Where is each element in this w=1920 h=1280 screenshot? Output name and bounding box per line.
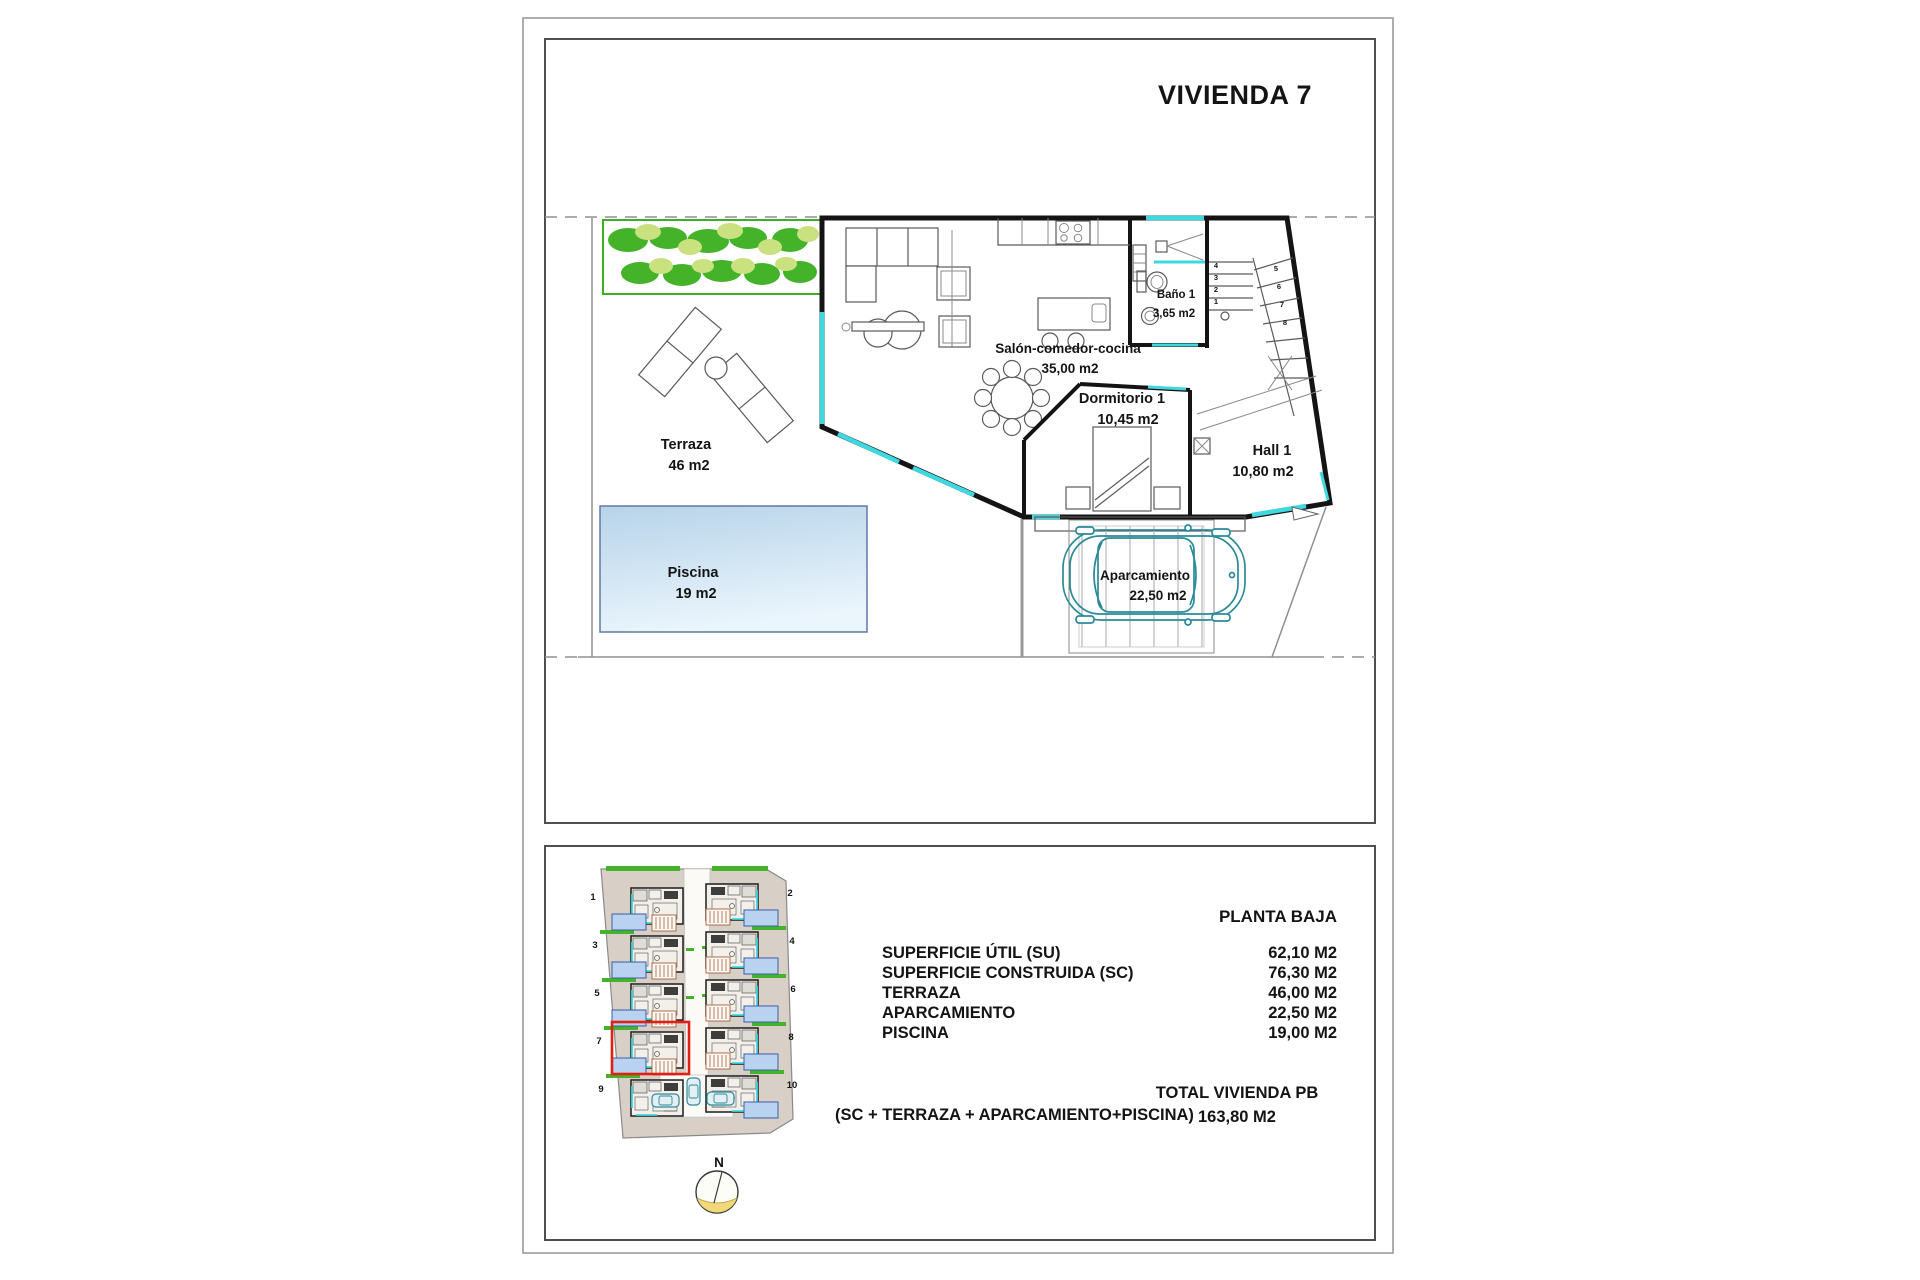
summary-row-label: APARCAMIENTO: [882, 1004, 1015, 1022]
terrace: Terraza 46 m2: [639, 307, 794, 474]
summary-row-value: 76,30 M2: [1268, 964, 1337, 982]
page-title: VIVIENDA 7: [1158, 80, 1312, 110]
pool: Piscina 19 m2: [600, 506, 867, 632]
plan-sheet: VIVIENDA 7: [0, 0, 1920, 1280]
plot-number: 4: [789, 936, 795, 947]
site-plan: 1 2 3 4 5 6 7 8 9 10 N: [590, 866, 797, 1213]
room-label-piscina: Piscina: [668, 565, 720, 581]
room-area-dormitorio: 10,45 m2: [1097, 412, 1158, 428]
room-area-salon: 35,00 m2: [1041, 361, 1098, 376]
nightstand: [1154, 487, 1180, 509]
dining-chair: [975, 390, 992, 407]
summary-row-label: SUPERFICIE ÚTIL (SU): [882, 943, 1060, 962]
room-label-hall: Hall 1: [1253, 443, 1292, 459]
room-label-dormitorio: Dormitorio 1: [1079, 391, 1165, 407]
summary-row-label: TERRAZA: [882, 984, 961, 1002]
sofa: [846, 228, 938, 266]
stair-step-number: 7: [1280, 300, 1284, 309]
plot-number: 8: [788, 1032, 793, 1043]
dining-chair: [1025, 369, 1042, 386]
floor-plan: VIVIENDA 7: [545, 80, 1375, 657]
room-label-terraza: Terraza: [661, 437, 712, 453]
side-table: [705, 357, 727, 379]
summary-row-value: 22,50 M2: [1268, 1004, 1337, 1022]
summary-row-label: PISCINA: [882, 1024, 949, 1042]
tv-bench: [852, 322, 924, 331]
plot-number: 1: [590, 892, 596, 903]
plot-number: 7: [596, 1036, 601, 1047]
sun-lounger: [639, 307, 722, 396]
pool-water: [600, 506, 867, 632]
room-area-aparcamiento: 22,50 m2: [1129, 588, 1186, 603]
plot-number: 5: [594, 988, 600, 999]
parking-bay: [1069, 520, 1214, 653]
room-area-hall: 10,80 m2: [1232, 464, 1293, 480]
plot-number: 3: [592, 940, 597, 951]
dining-chair: [1004, 419, 1021, 436]
summary-row-value: 19,00 M2: [1268, 1024, 1337, 1042]
plot-line-right-slant: [1272, 507, 1326, 657]
plot-number: 6: [790, 984, 795, 995]
dining-chair: [983, 411, 1000, 428]
planter-bed: [603, 220, 822, 294]
room-area-piscina: 19 m2: [675, 586, 716, 602]
summary-total-label: TOTAL VIVIENDA PB: [1156, 1084, 1319, 1102]
plot-number: 9: [598, 1084, 603, 1095]
sofa-chaise: [846, 266, 876, 302]
side-table: [937, 267, 970, 300]
plot-number: 2: [787, 888, 792, 899]
stair-step-number: 2: [1214, 285, 1218, 294]
north-compass: N: [696, 1155, 738, 1213]
room-area-terraza: 46 m2: [668, 458, 709, 474]
site-car-icon: [687, 1078, 700, 1105]
site-car-icon: [652, 1094, 679, 1107]
summary-formula: (SC + TERRAZA + APARCAMIENTO+PISCINA): [835, 1106, 1194, 1124]
summary-row-label: SUPERFICIE CONSTRUIDA (SC): [882, 964, 1133, 982]
stair-step-number: 3: [1214, 273, 1218, 282]
room-label-bano: Baño 1: [1157, 289, 1196, 301]
room-label-aparcamiento: Aparcamiento: [1100, 568, 1190, 583]
stair-step-number: 5: [1274, 264, 1278, 273]
plot-number: 10: [787, 1080, 798, 1091]
stair-step-number: 1: [1214, 297, 1218, 306]
kitchen-island: [1038, 298, 1110, 330]
site-car-icon: [707, 1092, 734, 1105]
room-label-salon: Salón-comedor-cocina: [995, 341, 1141, 356]
stair-step-number: 8: [1283, 318, 1287, 327]
summary-header: PLANTA BAJA: [1219, 907, 1337, 926]
dining-chair: [1033, 390, 1050, 407]
side-table: [939, 316, 970, 347]
summary-total-value: 163,80 M2: [1198, 1108, 1276, 1126]
summary-row-value: 46,00 M2: [1268, 984, 1337, 1002]
dining-chair: [983, 369, 1000, 386]
bed: [1093, 427, 1151, 511]
building: Baño 1 3,65 m2: [822, 218, 1330, 531]
stair-step-number: 6: [1277, 282, 1281, 291]
room-area-bano: 3,65 m2: [1153, 308, 1195, 320]
dining-chair: [1004, 361, 1021, 378]
window-bedroom-2: [1148, 387, 1186, 389]
nightstand: [1066, 487, 1090, 509]
parking: Aparcamiento 22,50 m2: [1063, 520, 1245, 653]
summary-table: PLANTA BAJA SUPERFICIE ÚTIL (SU) 62,10 M…: [835, 907, 1337, 1126]
summary-row-value: 62,10 M2: [1268, 944, 1337, 962]
north-label: N: [714, 1155, 724, 1170]
